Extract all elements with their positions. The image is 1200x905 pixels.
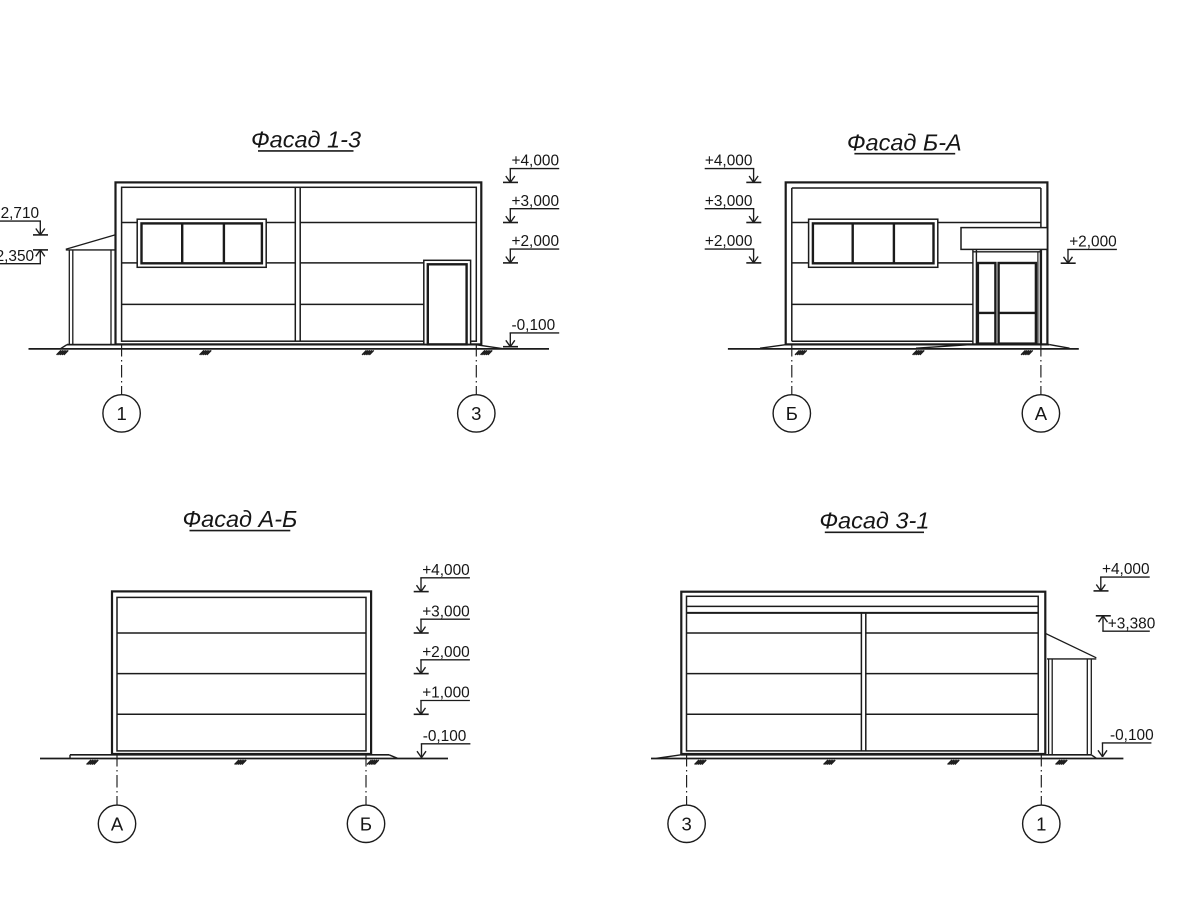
svg-text:+2,000: +2,000: [512, 233, 560, 250]
svg-text:Фасад 1-3: Фасад 1-3: [251, 127, 361, 153]
svg-text:А: А: [111, 813, 124, 834]
svg-text:Б: Б: [786, 403, 798, 424]
svg-text:+3,000: +3,000: [422, 603, 470, 620]
svg-text:+2,000: +2,000: [705, 233, 753, 250]
svg-text:+3,000: +3,000: [705, 193, 753, 210]
svg-text:Фасад 3-1: Фасад 3-1: [819, 507, 929, 533]
svg-text:-0,100: -0,100: [423, 728, 467, 745]
svg-text:-0,100: -0,100: [1110, 727, 1154, 744]
svg-text:1: 1: [116, 403, 126, 424]
svg-text:3: 3: [681, 813, 691, 834]
svg-text:+2,000: +2,000: [422, 644, 470, 661]
svg-text:+2,000: +2,000: [1069, 234, 1117, 251]
svg-text:+4,000: +4,000: [705, 153, 753, 170]
svg-text:Б: Б: [360, 813, 372, 834]
svg-text:+2,350: +2,350: [0, 248, 34, 265]
svg-text:+2,710: +2,710: [0, 205, 39, 222]
svg-text:+1,000: +1,000: [422, 685, 470, 702]
svg-text:+4,000: +4,000: [512, 153, 560, 170]
svg-text:3: 3: [471, 403, 481, 424]
svg-text:+4,000: +4,000: [422, 562, 470, 579]
svg-text:А: А: [1035, 403, 1048, 424]
svg-text:+3,000: +3,000: [512, 193, 560, 210]
svg-text:+4,000: +4,000: [1102, 561, 1150, 578]
svg-text:1: 1: [1036, 813, 1046, 834]
svg-text:Фасад А-Б: Фасад А-Б: [182, 506, 297, 532]
svg-text:+3,380: +3,380: [1108, 615, 1156, 632]
svg-text:-0,100: -0,100: [512, 317, 556, 334]
svg-text:Фасад Б-А: Фасад Б-А: [847, 129, 962, 155]
